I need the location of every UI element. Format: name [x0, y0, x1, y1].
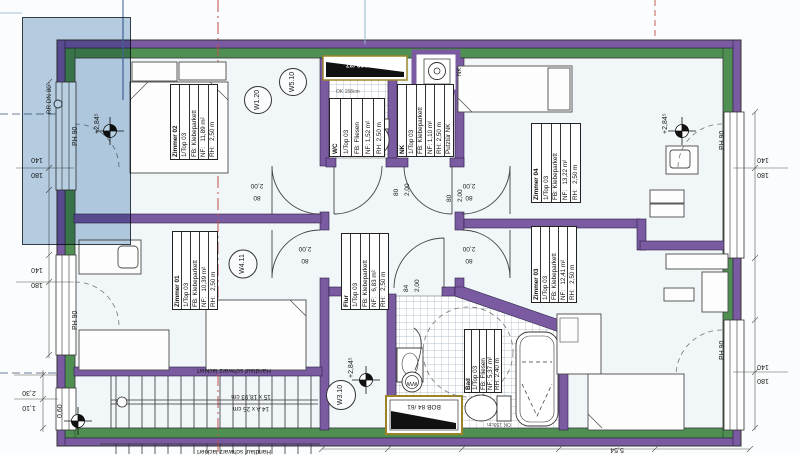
room-name: Zimmer 03 [532, 227, 540, 302]
pillow [132, 62, 177, 81]
dim-060: 0,60 [57, 390, 68, 418]
door-size-zimmer03: 802,00 [456, 240, 482, 264]
dim-230: 2,30 [12, 386, 46, 396]
room-name: WC [330, 99, 340, 156]
wall-tag-w510: W5.10 [286, 66, 299, 98]
sideboard [702, 272, 728, 312]
duct-label: NK [457, 60, 466, 76]
shaft-label-top: BOB 139 /37 [326, 57, 404, 68]
level-annotation: +2,84⁵ [348, 334, 359, 378]
shaft-label-bottom: BOB 84 /61 [392, 399, 456, 410]
handrail-note: Handlauf schwarz lackiert [158, 365, 310, 374]
dim-140: 140 [752, 361, 774, 370]
stair-spec: 15 x 18,93 cm [214, 391, 288, 400]
door-size-bad: 842,00 [403, 256, 425, 292]
room-label-zimmer04: Zimmer 04 1/Top 03 FB: Klebeparkett NF: … [531, 123, 581, 203]
wardrobe-zimmer01 [79, 330, 169, 370]
wall-tag-w120: W1.20 [251, 84, 264, 116]
room-label-flur: Flur 1/Top 03 FB: Klebeparkett NF: 6,83 … [341, 233, 389, 310]
room-name: NK [398, 85, 406, 156]
wall-tag-w411: W4.11 [236, 248, 249, 280]
shelf [650, 190, 684, 203]
bed-zimmer01 [206, 300, 306, 370]
pillow [179, 62, 226, 80]
room-name: Zimmer 04 [532, 124, 541, 202]
sill-height-note: OK 158cm [478, 418, 520, 426]
boiler-label: WW [401, 375, 423, 386]
desk-zimmer03 [666, 254, 728, 269]
parapet-height-label: PH 90 [719, 326, 732, 360]
dim-554: 5,54 [600, 443, 634, 453]
room-label-zimmer01: Zimmer 01 1/Top 03 FB: Klebeparkett NF: … [172, 231, 218, 310]
dim-110: 1,10 [12, 401, 46, 411]
fan-icon [429, 63, 446, 80]
shelf [650, 204, 684, 217]
parapet-height-label: PH 90 [719, 116, 732, 150]
door-size-zimmer04: 802,00 [456, 177, 482, 201]
room-name: Zimmer 02 [171, 85, 179, 159]
dim-140: 140 [752, 154, 774, 163]
door-size-zimmer01: 802,00 [292, 240, 318, 264]
door-size-zimmer02: 802,00 [244, 177, 270, 201]
room-label-zimmer02: Zimmer 02 1/Top 03 FB: Klebeparkett NF: … [170, 84, 218, 160]
room-name: Flur [342, 234, 350, 309]
chair [670, 150, 690, 168]
dim-180: 180 [26, 279, 48, 288]
newel-post [117, 397, 127, 407]
shelf [664, 288, 694, 301]
room-label-bad: Bad 1/Top 03 FB: Fliesen NF: 5,37 m² RH:… [464, 329, 502, 393]
bathtub [516, 332, 558, 426]
highlight-overlay [22, 17, 131, 245]
sill-height-note: OK 158cm [336, 90, 380, 98]
dim-180: 180 [752, 375, 774, 384]
level-annotation: +2,84⁵ [662, 90, 673, 134]
bed-zimmer03 [588, 374, 684, 430]
wall-tag-w310: W3.10 [334, 379, 347, 411]
dim-140: 140 [26, 264, 48, 273]
stair-spec: 14 A x 25 cm [214, 403, 288, 412]
dim-180: 180 [752, 169, 774, 178]
pillow [548, 68, 570, 110]
door-size-wc: 802,00 [393, 156, 415, 196]
room-label-wc: WC 1/Top 03 FB: Fliesen NF: 1,52 m² RH: … [329, 98, 385, 157]
parapet-height-label: PH 90 [72, 296, 85, 330]
room-label-nk: NK 1/Top 03 FB: Klebeparkett NF: 1,10 m²… [397, 84, 454, 157]
room-name: Zimmer 01 [173, 232, 181, 309]
chair [118, 246, 138, 268]
floorplan-page: Zimmer 02 1/Top 03 FB: Klebeparkett NF: … [0, 0, 800, 454]
room-label-zimmer03: Zimmer 03 1/Top 03 FB: Klebeparkett NF: … [531, 226, 577, 303]
